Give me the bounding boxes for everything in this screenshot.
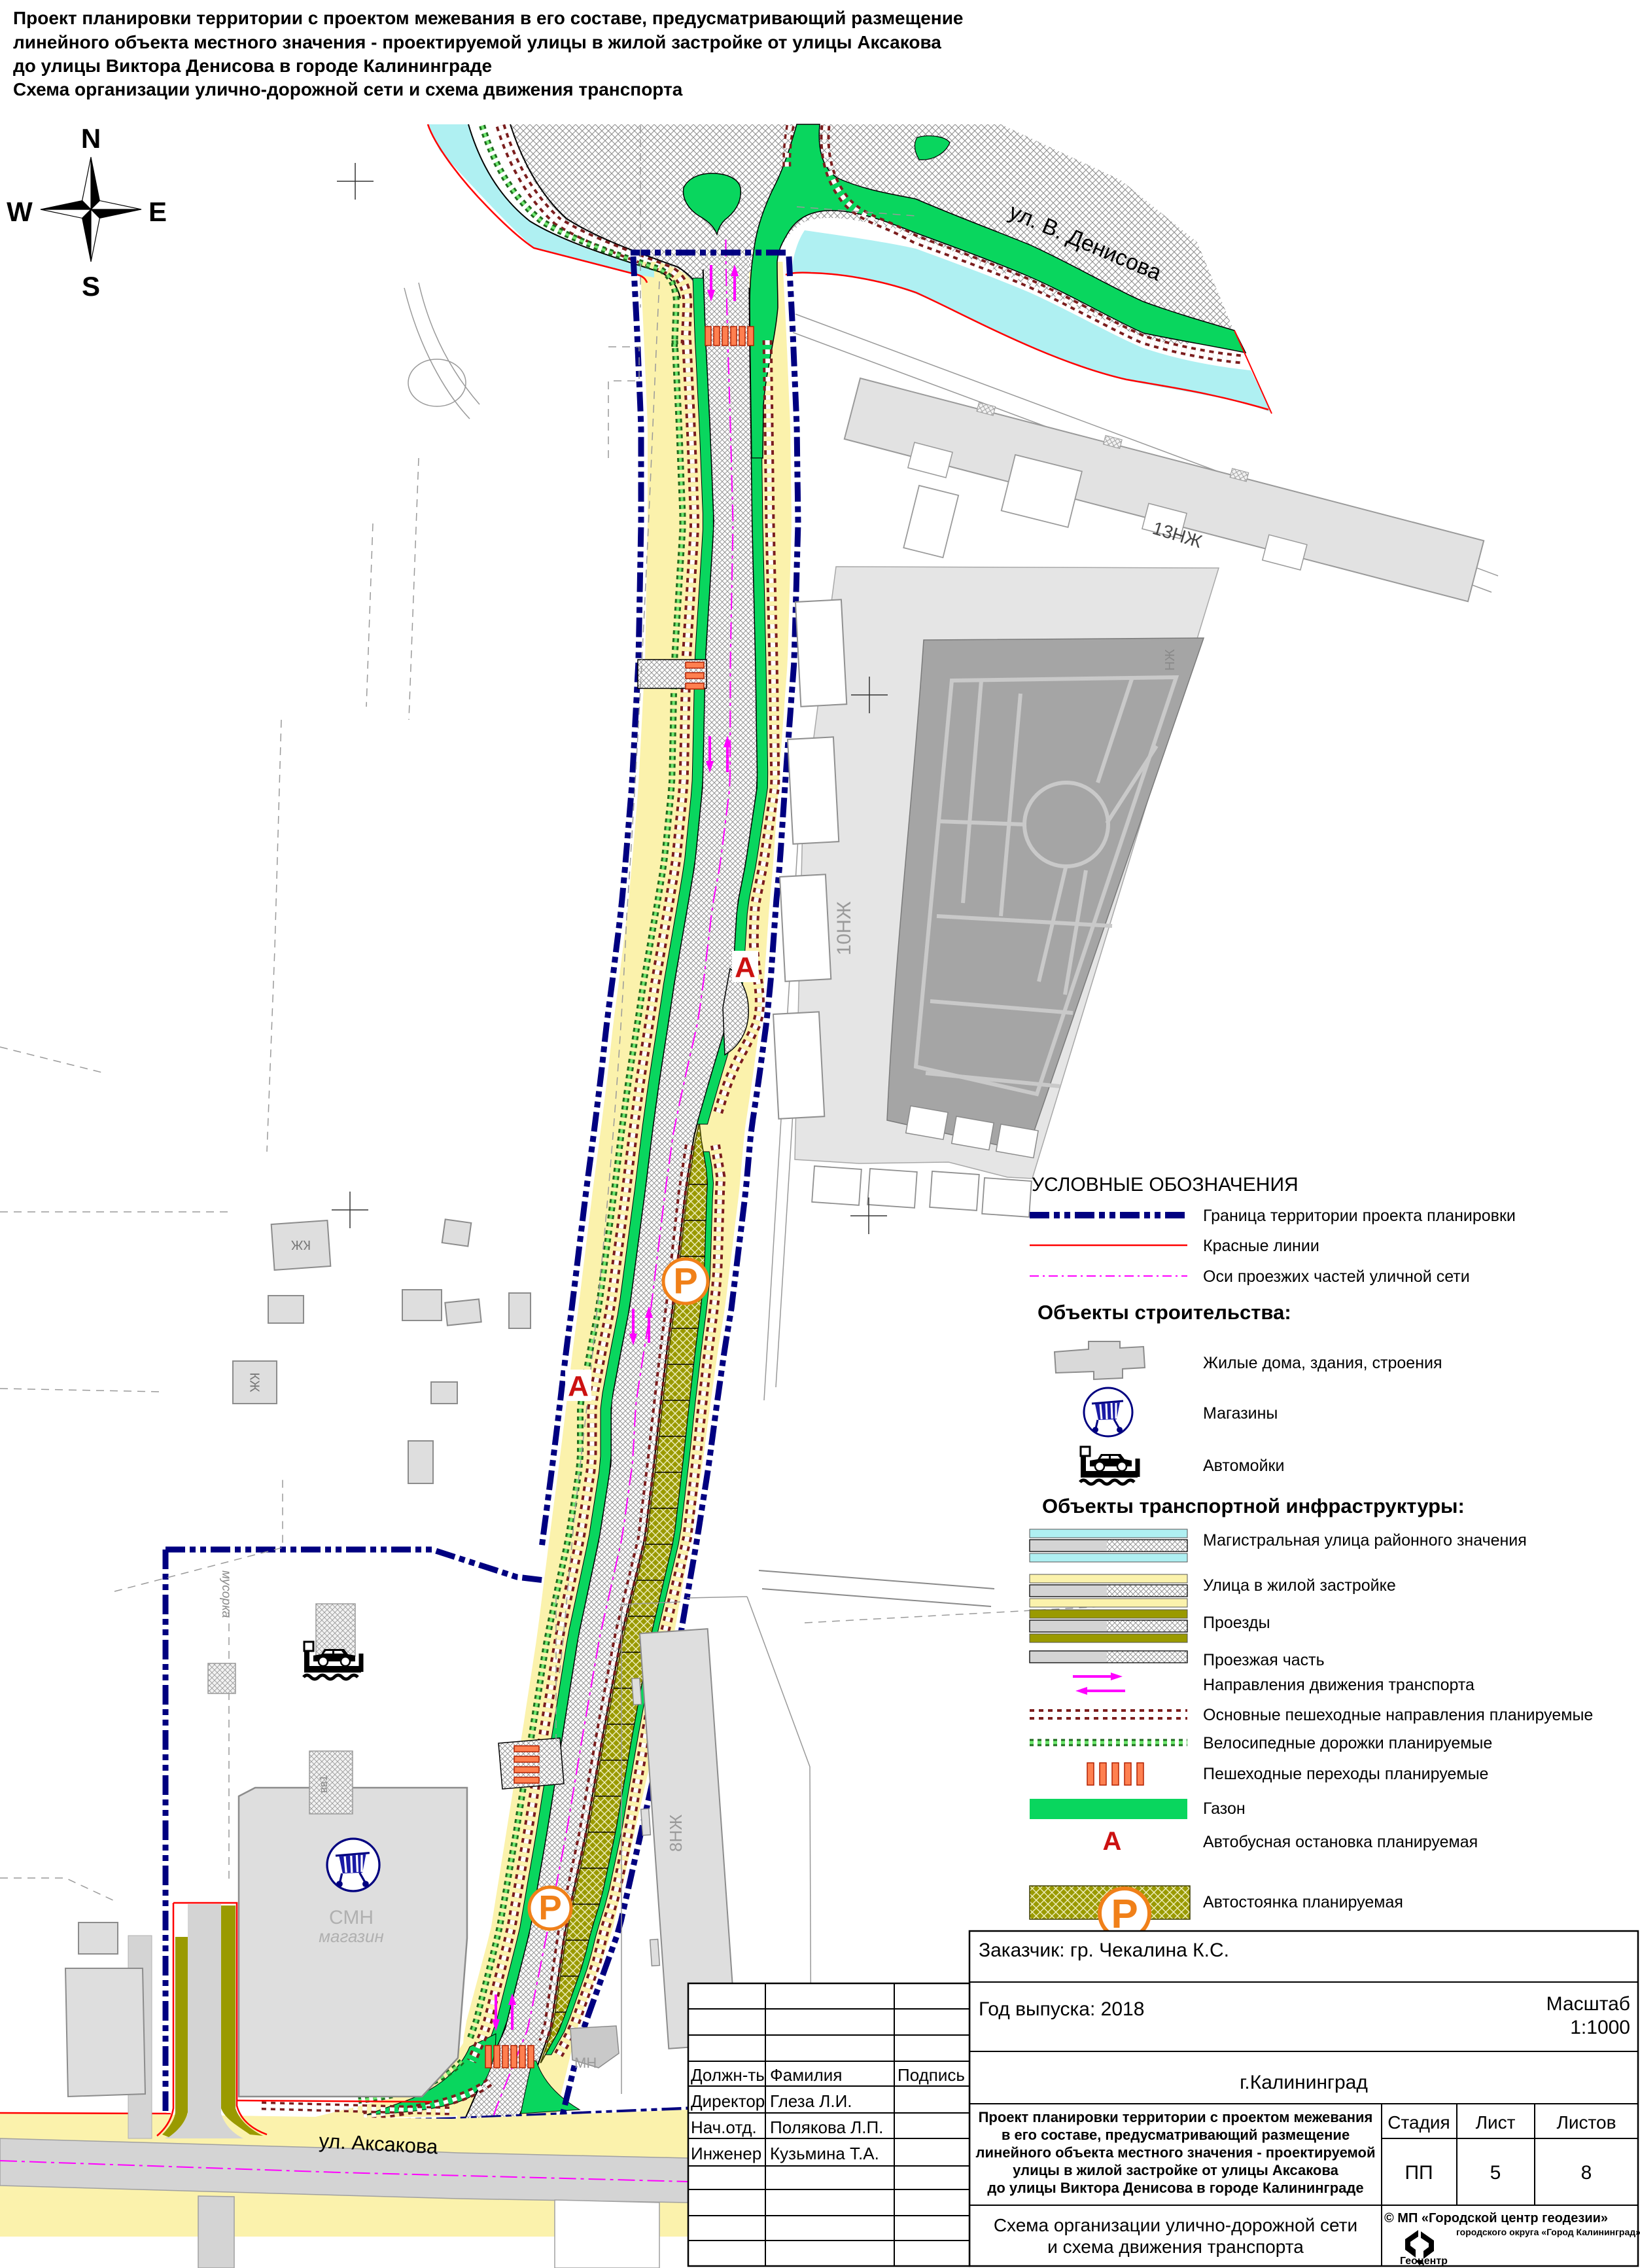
svg-text:Газон: Газон	[1203, 1799, 1246, 1818]
svg-text:N: N	[81, 123, 101, 154]
svg-text:Листов: Листов	[1557, 2112, 1616, 2133]
svg-text:Направления движения транспорт: Направления движения транспорта	[1203, 1676, 1474, 1694]
svg-text:Проезды: Проезды	[1203, 1614, 1270, 1632]
svg-text:Масштаб: Масштаб	[1546, 1993, 1630, 2015]
svg-text:S: S	[82, 271, 100, 302]
svg-text:8НЖ: 8НЖ	[666, 1815, 686, 1852]
svg-text:Геоцентр: Геоцентр	[1400, 2256, 1448, 2267]
svg-text:Улица в жилой застройке: Улица в жилой застройке	[1203, 1576, 1396, 1595]
svg-text:магазин: магазин	[319, 1926, 384, 1946]
svg-text:улицы в жилой застройке от ули: улицы в жилой застройке от улицы Аксаков…	[1013, 2162, 1338, 2178]
svg-text:КЖ: КЖ	[290, 1237, 311, 1252]
svg-text:Граница территории проекта пла: Граница территории проекта планировки	[1203, 1207, 1516, 1225]
svg-text:Магазины: Магазины	[1203, 1404, 1278, 1423]
svg-text:СМН: СМН	[329, 1907, 374, 1928]
svg-text:Основные пешеходные направлени: Основные пешеходные направления планируе…	[1203, 1706, 1593, 1724]
svg-text:Магистральная улица районного: Магистральная улица районного значения	[1203, 1531, 1527, 1550]
svg-text:5: 5	[1490, 2162, 1501, 2184]
svg-text:Автостоянка планируемая: Автостоянка планируемая	[1203, 1893, 1403, 1911]
svg-text:Велосипедные дорожки планируем: Велосипедные дорожки планируемые	[1203, 1734, 1492, 1752]
svg-text:А: А	[735, 951, 756, 983]
svg-text:10НЖ: 10НЖ	[833, 901, 855, 955]
svg-text:А: А	[568, 1370, 589, 1402]
svg-text:до улицы Виктора Денисова в го: до улицы Виктора Денисова в городе Калин…	[13, 56, 492, 76]
svg-text:Проект планировки территории с: Проект планировки территории с проектом …	[13, 8, 964, 28]
svg-text:Пешеходные переходы планируемы: Пешеходные переходы планируемые	[1203, 1765, 1488, 1783]
svg-text:Схема организации улично-дорож: Схема организации улично-дорожной сети и…	[13, 79, 683, 99]
svg-text:Жилые дома, здания, строения: Жилые дома, здания, строения	[1203, 1354, 1442, 1372]
svg-text:МН: МН	[574, 2055, 597, 2071]
svg-text:Стадия: Стадия	[1387, 2112, 1450, 2133]
svg-text:КЖ: КЖ	[247, 1372, 262, 1392]
svg-text:Оси проезжих частей уличной се: Оси проезжих частей уличной сети	[1203, 1267, 1470, 1286]
svg-text:в его составе, предусматривающ: в его составе, предусматривающий размеще…	[1002, 2127, 1350, 2143]
svg-text:Автобусная остановка планируем: Автобусная остановка планируемая	[1203, 1833, 1478, 1851]
svg-text:Фамилия: Фамилия	[770, 2065, 842, 2085]
svg-text:Лист: Лист	[1476, 2112, 1516, 2133]
svg-text:Год выпуска: 2018: Год выпуска: 2018	[979, 1998, 1144, 2020]
svg-text:и схема движения транспорта: и схема движения транспорта	[1047, 2237, 1304, 2257]
svg-text:Р: Р	[538, 1889, 561, 1928]
svg-text:Должн-ть: Должн-ть	[691, 2065, 765, 2085]
svg-text:вв1: вв1	[317, 1775, 330, 1793]
svg-text:линейного объекта местного зна: линейного объекта местного значения - пр…	[975, 2144, 1375, 2161]
svg-text:Директор: Директор	[691, 2091, 765, 2111]
svg-text:© МП «Городской центр геодезии: © МП «Городской центр геодезии»	[1384, 2211, 1608, 2225]
svg-text:Подпись: Подпись	[898, 2065, 965, 2085]
svg-text:Нач.отд.: Нач.отд.	[691, 2117, 757, 2137]
svg-text:ПП: ПП	[1404, 2162, 1433, 2184]
svg-text:А: А	[1103, 1827, 1122, 1856]
svg-text:Объекты строительства:: Объекты строительства:	[1038, 1301, 1291, 1324]
svg-text:Кузьмина Т.А.: Кузьмина Т.А.	[770, 2144, 879, 2163]
svg-text:Полякова Л.П.: Полякова Л.П.	[770, 2117, 883, 2137]
svg-text:г.Калининград: г.Калининград	[1240, 2072, 1368, 2093]
svg-text:мусорка: мусорка	[219, 1570, 233, 1618]
svg-text:городского округа «Город Калин: городского округа «Город Калининград»	[1456, 2227, 1640, 2237]
svg-text:E: E	[148, 196, 167, 227]
svg-text:до улицы Виктора Денисова в го: до улицы Виктора Денисова в городе Калин…	[987, 2180, 1363, 2196]
svg-text:Красные линии: Красные линии	[1203, 1237, 1319, 1255]
svg-text:НЖ: НЖ	[1163, 649, 1178, 671]
svg-text:8: 8	[1581, 2162, 1592, 2184]
svg-text:Проезжая часть: Проезжая часть	[1203, 1651, 1325, 1669]
svg-text:1:1000: 1:1000	[1570, 2017, 1630, 2038]
svg-text:Автомойки: Автомойки	[1203, 1457, 1284, 1475]
svg-text:Р: Р	[673, 1260, 697, 1302]
svg-text:Схема организации улично-дорож: Схема организации улично-дорожной сети	[994, 2215, 1357, 2235]
svg-text:W: W	[7, 196, 33, 227]
svg-text:Инженер: Инженер	[691, 2144, 761, 2163]
svg-text:Р: Р	[1111, 1892, 1138, 1937]
svg-text:Заказчик: гр. Чекалина К.С.: Заказчик: гр. Чекалина К.С.	[979, 1940, 1229, 1961]
svg-text:Объекты транспортной инфрастру: Объекты транспортной инфраструктуры:	[1042, 1495, 1465, 1517]
svg-text:Глеза Л.И.: Глеза Л.И.	[770, 2091, 852, 2111]
svg-text:линейного объекта местного зна: линейного объекта местного значения - пр…	[13, 32, 941, 52]
svg-text:Проект планировки территории с: Проект планировки территории с проектом …	[979, 2109, 1373, 2125]
svg-text:УСЛОВНЫЕ ОБОЗНАЧЕНИЯ: УСЛОВНЫЕ ОБОЗНАЧЕНИЯ	[1032, 1174, 1299, 1196]
